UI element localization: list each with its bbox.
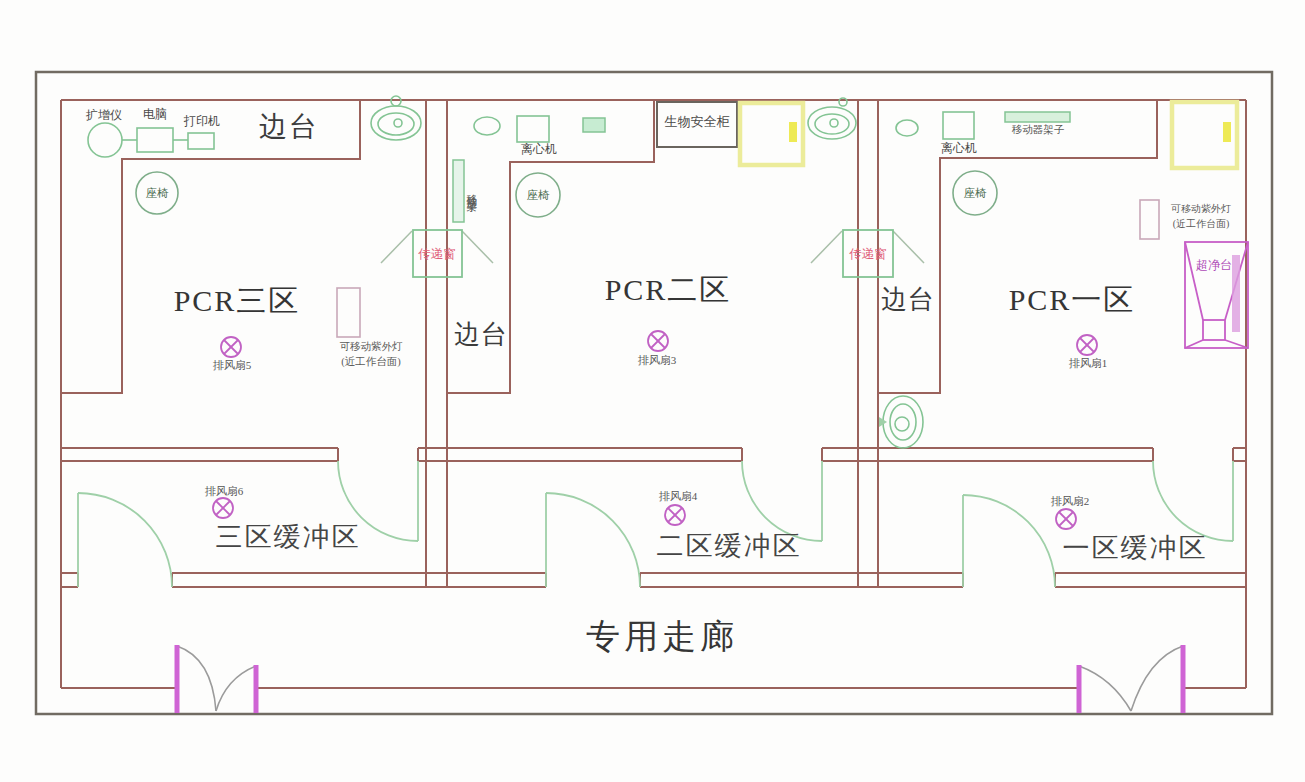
bench-outline-zone3 xyxy=(61,100,360,393)
bench-label-zone3: 边台 xyxy=(259,113,319,141)
zone3-equipment xyxy=(88,96,421,157)
door-arc-corridor-left-b xyxy=(216,666,256,711)
door-arc-corridor-left-a xyxy=(177,646,216,711)
buffer-zone3-title: 三区缓冲区 xyxy=(216,524,361,551)
mobile-rack-label-zone2: 移动器架子 xyxy=(466,186,477,196)
door-arc-corridor-right-b xyxy=(1131,646,1183,711)
door-arc-corridor-right-a xyxy=(1079,666,1131,711)
door-arc-buffer1-top xyxy=(1153,461,1233,541)
door-arc-buffer2-top xyxy=(742,461,822,541)
exhaust-fan-3-symbol xyxy=(648,331,668,351)
exhaust-fan-4-symbol xyxy=(665,505,685,525)
chair-label-zone3: 座椅 xyxy=(146,188,169,200)
bench-label-zone2: 边台 xyxy=(454,322,508,348)
exhaust-fan-1-label: 排风扇1 xyxy=(1069,358,1108,369)
printer-symbol xyxy=(188,133,214,149)
sink-symbol-zone2 xyxy=(808,98,856,139)
door-arc-buffer3-bottom xyxy=(78,493,172,587)
computer-label: 电脑 xyxy=(143,108,167,120)
exhaust-fan-5-label: 排风扇5 xyxy=(213,360,252,371)
bench-label-zone1: 边台 xyxy=(881,287,935,313)
centrifuge-label-zone2: 离心机 xyxy=(521,143,557,155)
mobile-rack-symbol-zone1 xyxy=(1005,112,1070,122)
centrifuge-label-zone1: 离心机 xyxy=(941,142,977,154)
exhaust-fan-1-symbol xyxy=(1077,335,1097,355)
mobile-rack-label-zone1: 移动器架子 xyxy=(1012,125,1065,136)
exhaust-fan-2-label: 排风扇2 xyxy=(1051,496,1090,507)
chair-label-zone2: 座椅 xyxy=(527,190,550,202)
uv-lamp-label-zone3-line2: (近工作台面) xyxy=(341,357,401,368)
computer-symbol xyxy=(137,128,173,152)
clean-bench-label: 超净台 xyxy=(1196,259,1232,271)
biosafety-cabinet-label: 生物安全柜 xyxy=(665,115,730,128)
buffer-zone2-title: 二区缓冲区 xyxy=(657,533,802,560)
buffer-zone1-title: 一区缓冲区 xyxy=(1063,535,1208,562)
uv-lamp-label-zone1-line2: (近工作台面) xyxy=(1173,219,1230,229)
chair-label-zone1: 座椅 xyxy=(964,188,987,200)
uv-lamp-label-zone1-line1: 可移动紫外灯 xyxy=(1171,204,1231,214)
pass-window-right-label: 传递窗 xyxy=(849,248,887,261)
zone1-equipment xyxy=(879,102,1248,448)
uv-lamp-symbol-zone1 xyxy=(1140,200,1159,239)
room-title-pcr-zone1: PCR一区 xyxy=(1009,285,1136,315)
bench-outline-zone1 xyxy=(878,100,1157,393)
mobile-rack-symbol-zone2 xyxy=(453,160,464,222)
highlight-bar-zone1 xyxy=(1223,122,1231,142)
corridor-title: 专用走廊 xyxy=(586,620,738,654)
amplifier-symbol xyxy=(88,123,122,157)
sink-symbol-zone1 xyxy=(883,396,923,448)
exhaust-fan-6-label: 排风扇6 xyxy=(205,486,244,497)
amplifier-label: 扩增仪 xyxy=(86,109,122,121)
exhaust-fan-4-label: 排风扇4 xyxy=(659,491,698,502)
room-title-pcr-zone2: PCR二区 xyxy=(605,275,732,305)
exhaust-fan-6-symbol xyxy=(213,498,233,518)
door-arc-buffer1-bottom xyxy=(963,495,1055,587)
exhaust-fan-3-label: 排风扇3 xyxy=(638,355,677,366)
centrifuge-symbol-zone2 xyxy=(517,116,549,142)
uv-lamp-symbol-zone3 xyxy=(337,288,360,337)
pass-window-left-label: 传递窗 xyxy=(418,248,456,261)
room-title-pcr-zone3: PCR三区 xyxy=(174,286,301,316)
corridor-double-doors xyxy=(177,645,1183,713)
printer-label: 打印机 xyxy=(184,115,220,127)
pcr-lab-floor-plan: 扩增仪 电脑 打印机 边台 座椅 PCR三区 排风扇5 可移动紫外灯 (近工作台… xyxy=(0,0,1305,782)
centrifuge-symbol-zone1 xyxy=(943,112,974,139)
highlight-bar-zone2 xyxy=(789,122,797,142)
exhaust-fan-2-symbol xyxy=(1056,509,1076,529)
uv-lamp-label-zone3-line1: 可移动紫外灯 xyxy=(340,342,403,353)
inner-walls xyxy=(61,100,1246,688)
door-arc-buffer2-bottom xyxy=(546,493,640,587)
exhaust-fan-5-symbol xyxy=(221,337,241,357)
